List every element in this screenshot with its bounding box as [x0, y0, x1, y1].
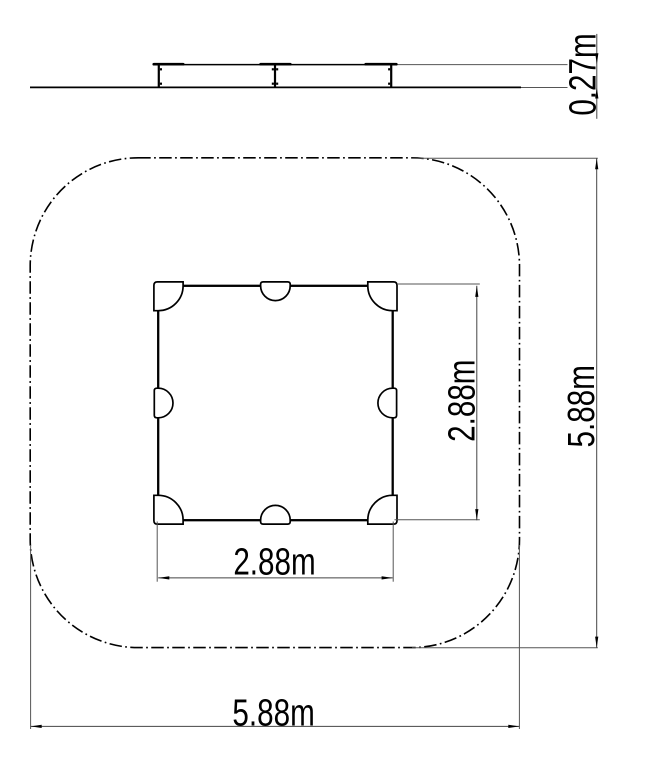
svg-text:2.88m: 2.88m	[441, 360, 483, 442]
svg-text:0.27m: 0.27m	[562, 33, 604, 115]
svg-text:5.88m: 5.88m	[232, 692, 314, 734]
svg-text:5.88m: 5.88m	[560, 365, 602, 447]
svg-text:2.88m: 2.88m	[233, 541, 315, 583]
